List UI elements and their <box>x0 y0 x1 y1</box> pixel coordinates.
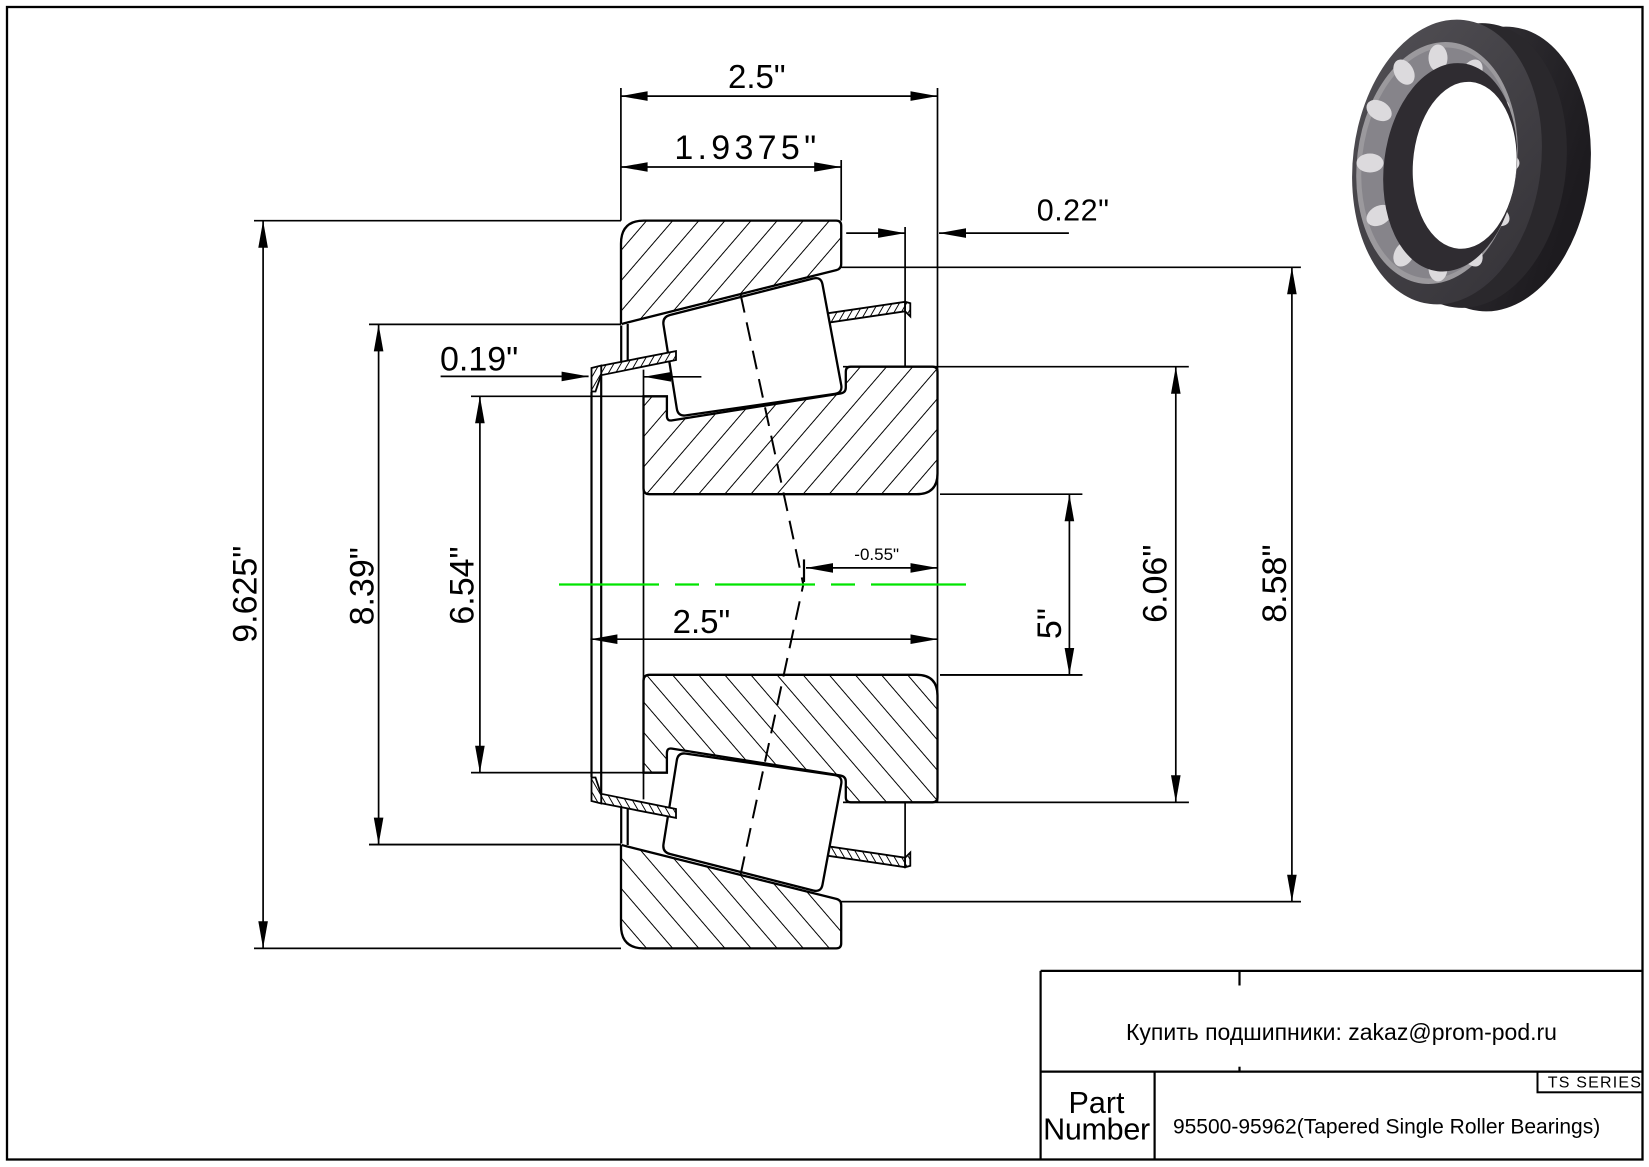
svg-text:8.39": 8.39" <box>344 547 382 625</box>
svg-text:95500-95962(Tapered Single Rol: 95500-95962(Tapered Single Roller Bearin… <box>1173 1115 1600 1138</box>
svg-text:0.19": 0.19" <box>440 340 518 378</box>
svg-text:-0.55": -0.55" <box>854 545 899 564</box>
svg-text:TS SERIES: TS SERIES <box>1548 1074 1642 1091</box>
svg-text:1.9375": 1.9375" <box>674 129 820 167</box>
svg-text:Number: Number <box>1043 1113 1150 1147</box>
svg-text:8.58": 8.58" <box>1256 544 1294 622</box>
svg-text:6.06": 6.06" <box>1136 545 1174 623</box>
svg-text:6.54": 6.54" <box>444 546 482 624</box>
svg-text:Купить подшипники: zakaz@prom-: Купить подшипники: zakaz@prom-pod.ru <box>1126 1019 1557 1045</box>
svg-text:2.5": 2.5" <box>728 58 786 95</box>
svg-text:0.22": 0.22" <box>1037 193 1110 227</box>
svg-text:9.625": 9.625" <box>227 546 265 643</box>
svg-text:5": 5" <box>1031 608 1069 639</box>
svg-text:2.5": 2.5" <box>673 603 731 640</box>
